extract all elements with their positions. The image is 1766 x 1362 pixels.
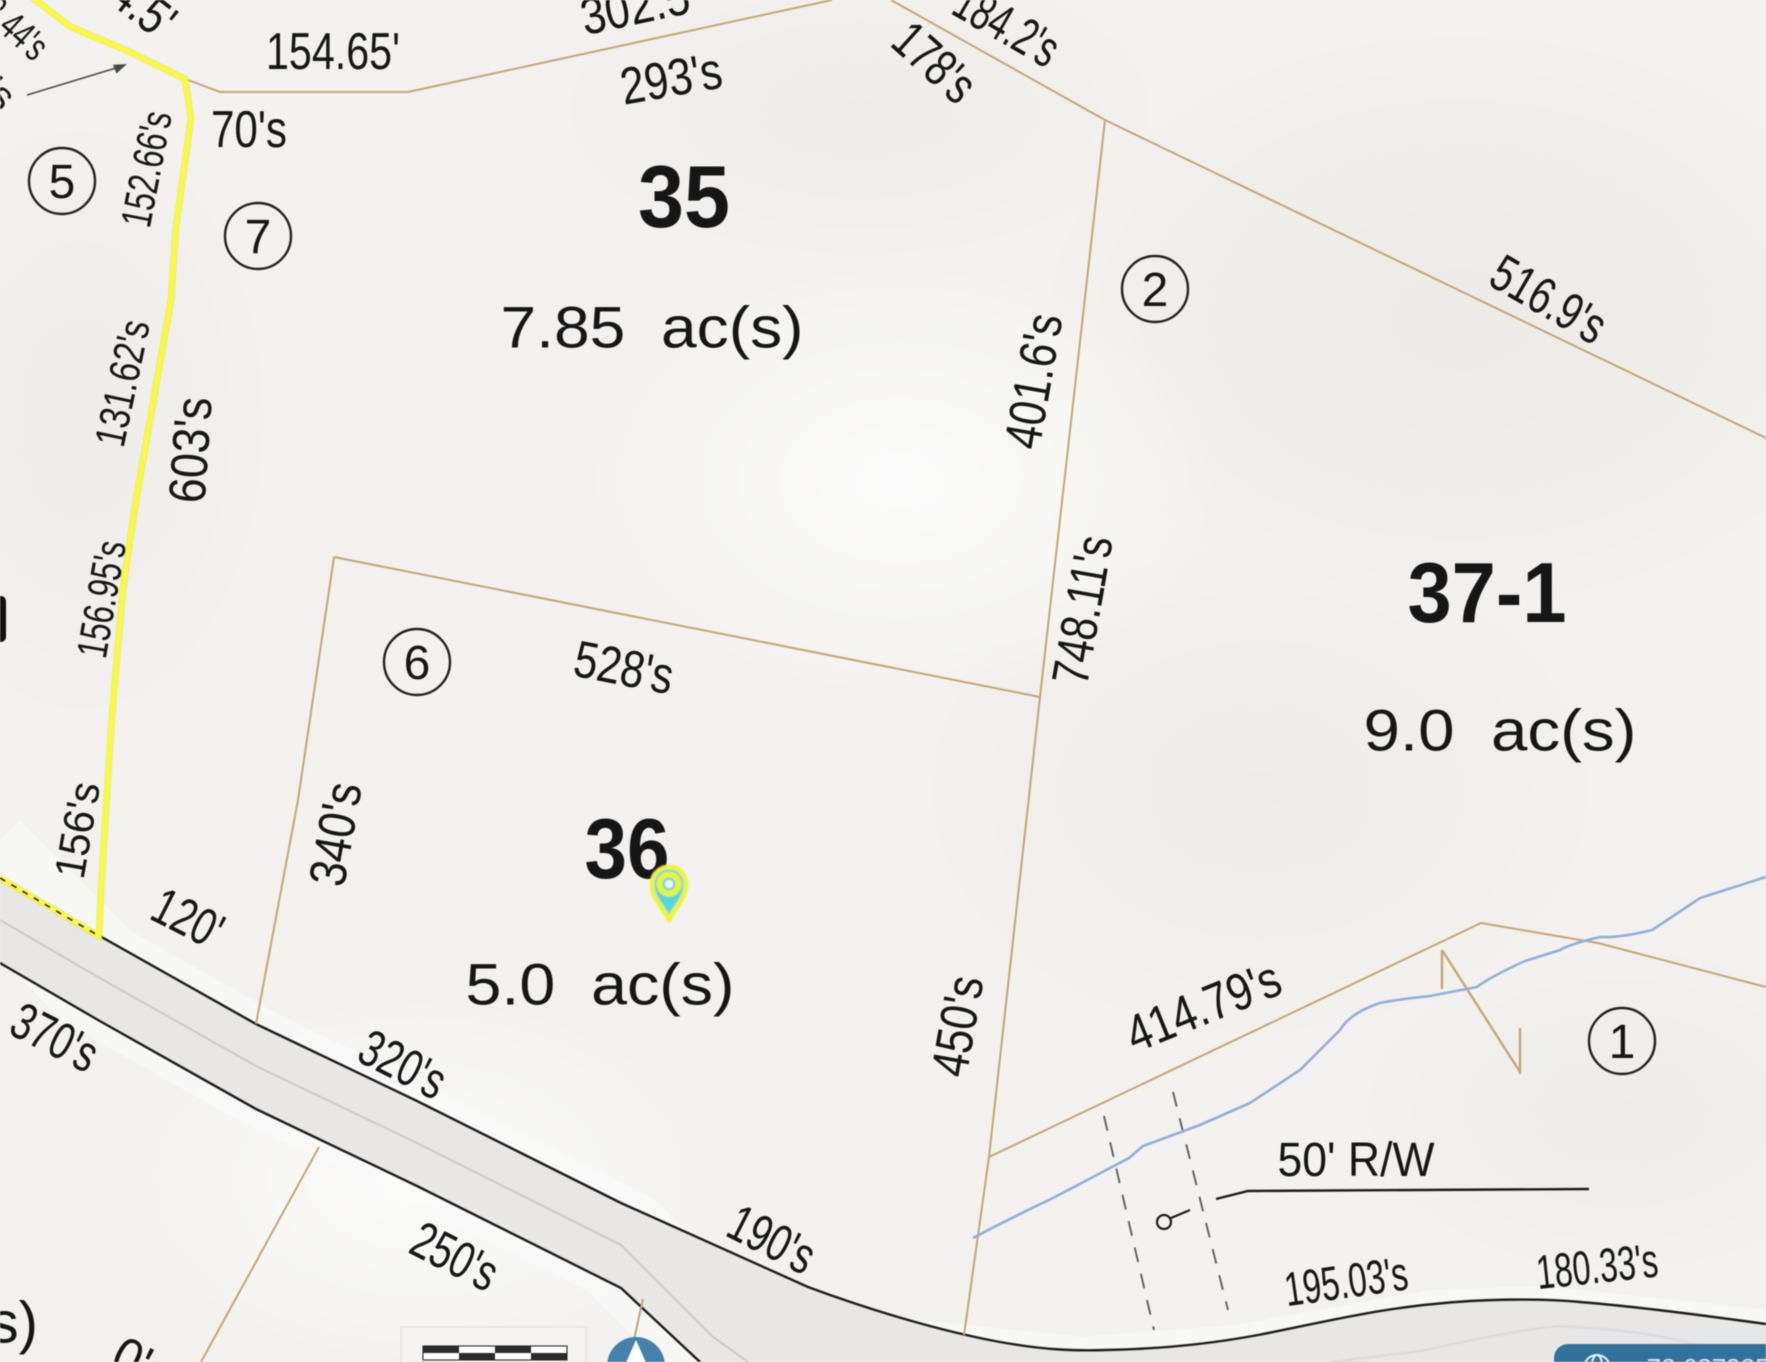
svg-text:ac(s): ac(s) [0,1290,38,1355]
svg-text:35: 35 [638,147,730,246]
svg-text:6: 6 [404,637,431,690]
svg-text:5: 5 [49,156,76,209]
svg-text:50' R/W: 50' R/W [1278,1134,1436,1187]
svg-text:-72.627925: -72.627925 [1638,1353,1766,1362]
svg-text:70's: 70's [211,101,287,159]
svg-text:154.65': 154.65' [266,23,400,81]
svg-text:37-1: 37-1 [1408,546,1567,641]
svg-text:603's: 603's [159,395,224,505]
svg-text:7.85 ac(s): 7.85 ac(s) [501,295,804,360]
svg-text:2: 2 [1142,264,1169,317]
svg-text:1: 1 [1609,1016,1636,1069]
svg-text:7: 7 [245,211,272,264]
svg-text:5.0 ac(s): 5.0 ac(s) [466,952,735,1017]
svg-text:9.0 ac(s): 9.0 ac(s) [1364,698,1637,763]
